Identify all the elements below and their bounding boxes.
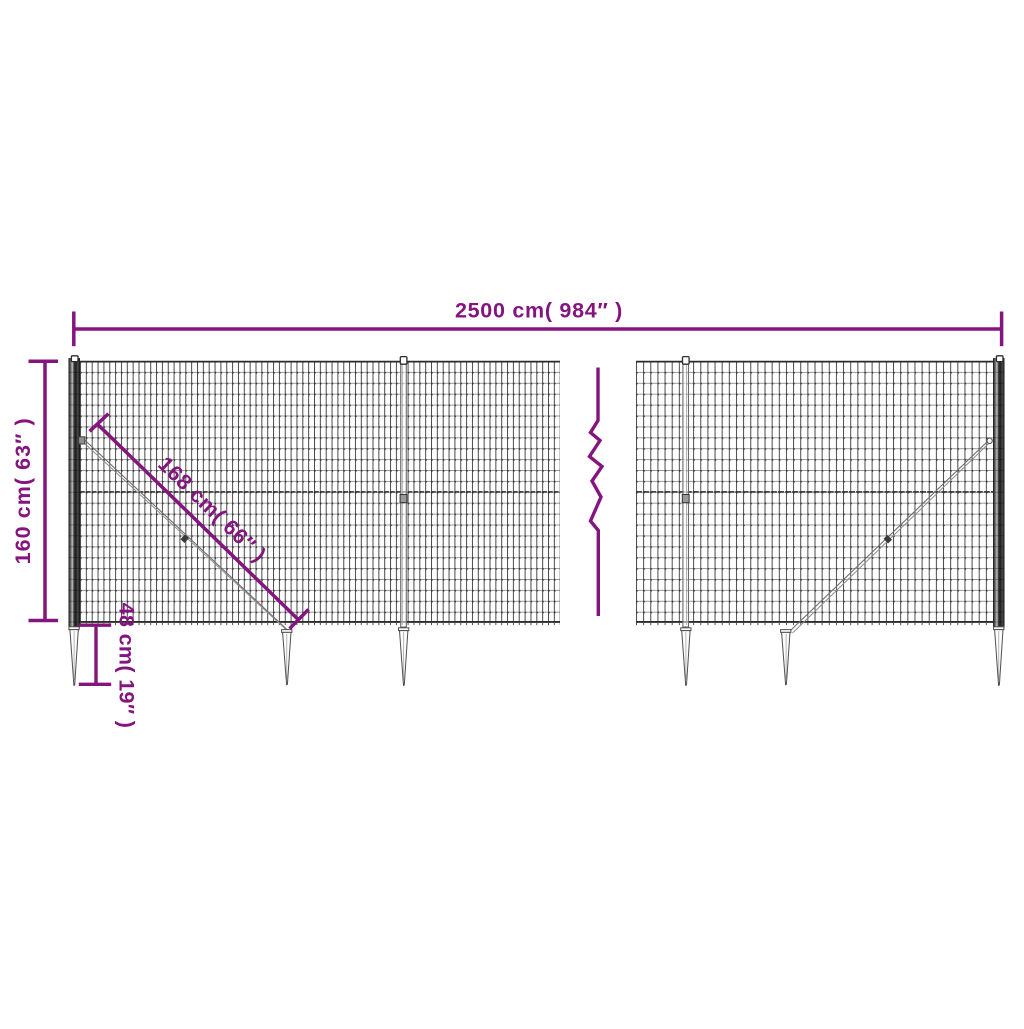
svg-text:48 cm( 19″ ): 48 cm( 19″ ) — [115, 603, 139, 729]
svg-text:2500 cm( 984″ ): 2500 cm( 984″ ) — [455, 299, 623, 323]
svg-text:160 cm( 63″ ): 160 cm( 63″ ) — [11, 417, 35, 564]
